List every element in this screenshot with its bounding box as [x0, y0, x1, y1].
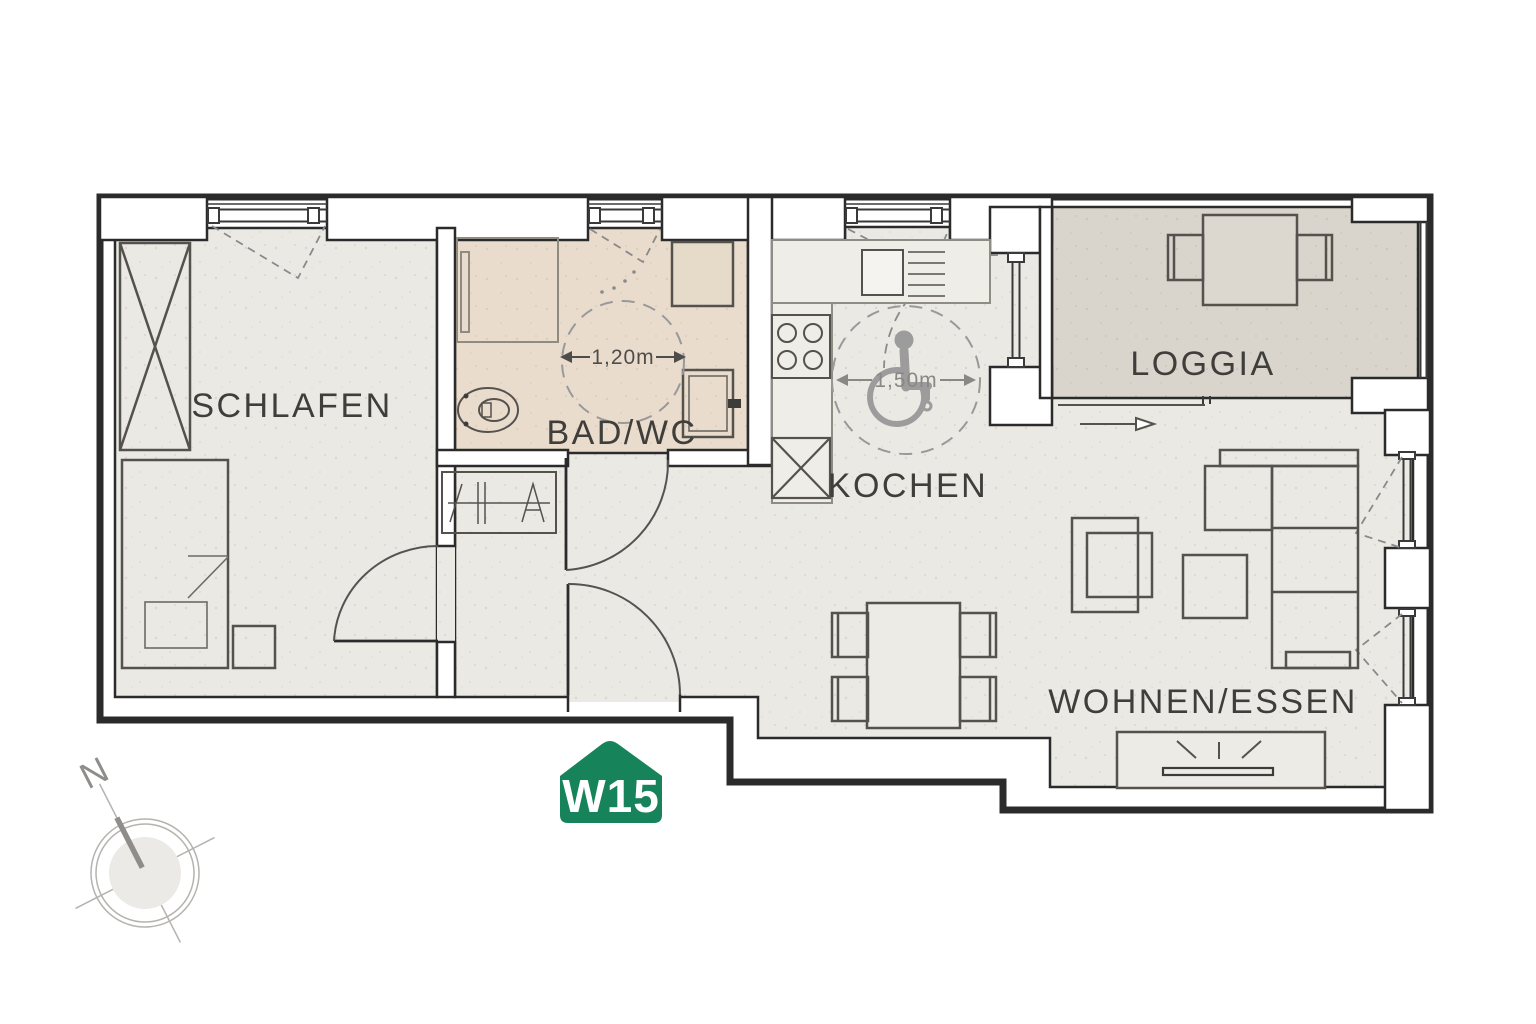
unit-badge-label: W15 [562, 770, 660, 822]
tv-sideboard [1117, 732, 1325, 788]
dimension-label-kitchen: 1,50m [874, 369, 937, 392]
room-label-wohnen-essen: WOHNEN/ESSEN [1048, 683, 1358, 721]
compass-north-label: N [73, 749, 115, 797]
floor-plan: 1,20m 1,50m [0, 0, 1536, 1024]
compass-rose: N [15, 719, 250, 978]
doorway-floor [437, 546, 455, 642]
room-label-kochen: KOCHEN [828, 467, 988, 505]
dining-table [867, 603, 960, 728]
room-label-bad-wc: BAD/WC [547, 414, 698, 452]
floor-plan-canvas: 1,20m 1,50m [0, 0, 1536, 1024]
room-label-loggia: LOGGIA [1130, 345, 1275, 383]
unit-badge: W15 [560, 741, 662, 823]
room-label-schlafen: SCHLAFEN [191, 387, 392, 425]
loggia-table [1203, 215, 1297, 305]
dimension-label-bath: 1,20m [591, 346, 654, 369]
entrance-threshold [569, 691, 680, 702]
faucet-icon [728, 399, 741, 408]
washing-machine [672, 242, 733, 306]
